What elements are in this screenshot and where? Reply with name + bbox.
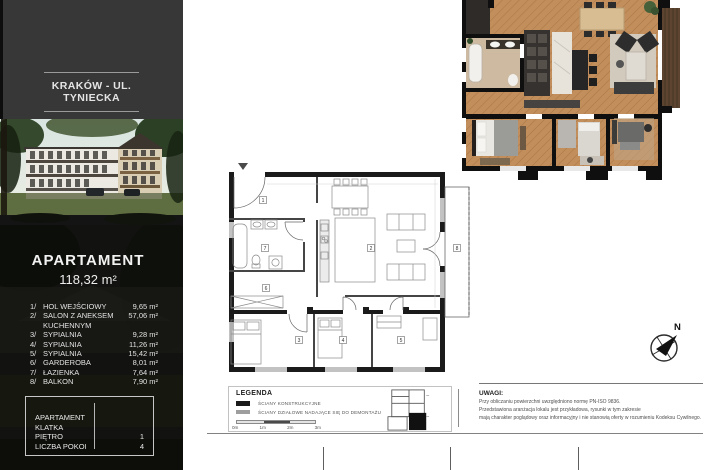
- building-photo: [0, 119, 183, 225]
- partition-walls: [229, 177, 440, 367]
- balcony-strip: [660, 0, 680, 113]
- info-row: PIĘTRO1: [26, 432, 153, 442]
- toilet: [252, 255, 260, 265]
- sidebar-edge-strip: [0, 0, 3, 120]
- location-rule-bottom: [44, 111, 139, 112]
- svg-text:8: 8: [456, 246, 459, 252]
- info-row: LICZBA POKOI4: [26, 442, 153, 452]
- sidebar: KRAKÓW - UL. TYNIECKA: [0, 0, 183, 470]
- structural-wall-swatch: [236, 401, 250, 406]
- location-block: KRAKÓW - UL. TYNIECKA: [24, 72, 159, 112]
- key-plan: [385, 388, 433, 432]
- partition-wall-swatch: [236, 410, 250, 415]
- scale-bar: [236, 420, 316, 424]
- lounge-area: [610, 31, 659, 94]
- room-badge: 7: [262, 245, 269, 252]
- media-unit: [524, 100, 580, 108]
- bedroom-right: [612, 118, 654, 160]
- apartment-heading: APARTAMENT: [0, 252, 176, 269]
- balcony-door-opening: [440, 232, 445, 266]
- fold-mark: [450, 447, 451, 470]
- room-badge: 6: [263, 285, 270, 292]
- wardrobe-crossed-box: [231, 296, 283, 308]
- brochure-page: KRAKÓW - UL. TYNIECKA: [0, 0, 720, 470]
- car: [86, 188, 104, 196]
- room-list-item: 6/GARDEROBA8,01 m²: [30, 358, 158, 367]
- legend-item: ŚCIANY DZIAŁOWE NADAJĄCE SIĘ DO DEMONTAŻ…: [236, 410, 381, 415]
- notes-block: UWAGI: Przy obliczaniu powierzchni uwzgl…: [479, 383, 703, 422]
- bathtub: [233, 224, 247, 268]
- washing-machine: [269, 256, 282, 269]
- room-badge: 8: [454, 245, 461, 252]
- svg-text:7: 7: [264, 246, 267, 252]
- room-list-item: 7/ŁAZIENKA7,64 m²: [30, 368, 158, 377]
- bed-room3: [231, 320, 261, 364]
- room-badge: 4: [340, 337, 347, 344]
- fold-mark: [323, 447, 324, 470]
- room-badge: 2: [368, 245, 375, 252]
- notes-line: mają charakter poglądowy oraz informacyj…: [479, 415, 703, 421]
- scale-labels: 0m 1m 2m 3m: [232, 425, 321, 430]
- svg-text:3: 3: [298, 338, 301, 344]
- info-box-divider: [94, 403, 95, 449]
- furniture-room5: [377, 316, 437, 340]
- notes-line: Przedstawiona aranżacja lokalu jest przy…: [479, 407, 703, 413]
- apartment-info-box: APARTAMENT KLATKA PIĘTRO1 LICZBA POKOI4: [25, 396, 154, 456]
- sofa: [387, 214, 425, 230]
- compass-north-label: N: [674, 322, 681, 333]
- coffee-table: [397, 240, 415, 252]
- windows: [229, 198, 445, 372]
- entry-wardrobe: [464, 0, 490, 36]
- info-row: APARTAMENT: [26, 413, 153, 423]
- room-list-item: 3/SYPIALNIA9,28 m²: [30, 330, 158, 339]
- floorplan-drawing: 1 2 3 4 5 6 7 8: [225, 160, 472, 380]
- kitchen-counter: [320, 220, 329, 282]
- fold-mark: [578, 447, 579, 470]
- bottom-rule: [207, 433, 703, 434]
- svg-text:1: 1: [262, 198, 265, 204]
- legend-title: LEGENDA: [236, 390, 272, 397]
- key-plan-highlight: [409, 413, 426, 430]
- bed-room4: [318, 318, 342, 358]
- compass-icon: N: [638, 318, 690, 372]
- room-list-item: 8/BALKON7,90 m²: [30, 377, 158, 386]
- room-badge: 1: [260, 197, 267, 204]
- legend-item: ŚCIANY KONSTRUKCYJNE: [236, 401, 321, 406]
- legend-box: LEGENDA ŚCIANY KONSTRUKCYJNE ŚCIANY DZIA…: [228, 386, 452, 432]
- building-main-block: [24, 147, 120, 195]
- sofa: [387, 264, 425, 280]
- dining-chairs: [334, 179, 367, 215]
- car: [124, 189, 140, 196]
- room-list-item: 4/SYPIALNIA11,26 m²: [30, 340, 158, 349]
- entrance-arrow-icon: [238, 163, 248, 170]
- room-list-item: 2/SALON Z ANEKSEM KUCHENNYM57,06 m²: [30, 311, 158, 330]
- room-badge: 3: [296, 337, 303, 344]
- balcony-outline: [445, 187, 469, 317]
- info-row: KLATKA: [26, 423, 153, 433]
- notes-line: Przy obliczaniu powierzchni uwzględniono…: [479, 399, 703, 405]
- svg-text:4: 4: [342, 338, 345, 344]
- room-list-item: 5/SYPIALNIA15,42 m²: [30, 349, 158, 358]
- render-3d-floorplan: [460, 0, 695, 186]
- apartment-total-area: 118,32 m²: [0, 272, 176, 287]
- room-list: 1/HOL WEJŚCIOWY9,65 m² 2/SALON Z ANEKSEM…: [30, 302, 158, 387]
- notes-title: UWAGI:: [479, 390, 703, 397]
- room-badge: 5: [398, 337, 405, 344]
- svg-text:6: 6: [265, 286, 268, 292]
- location-title: KRAKÓW - UL. TYNIECKA: [24, 73, 159, 111]
- svg-text:2: 2: [370, 246, 373, 252]
- svg-text:5: 5: [400, 338, 403, 344]
- legend-notes-divider: [458, 389, 459, 427]
- room-list-item: 1/HOL WEJŚCIOWY9,65 m²: [30, 302, 158, 311]
